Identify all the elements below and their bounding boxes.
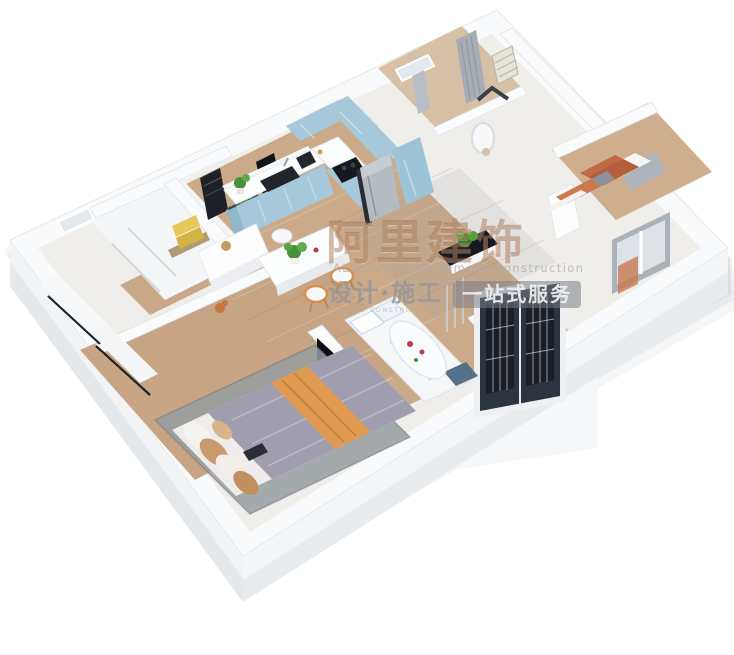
dining-chair-white: [272, 229, 292, 243]
entry-door: [474, 276, 566, 418]
mirror-arch: [472, 123, 494, 153]
floorplan-render: 阿里建饰 ALIECUS Development Construction 设计…: [0, 0, 734, 655]
wooden-jar: [221, 241, 231, 251]
amber-bottle: [318, 150, 323, 155]
sink-bowl: [482, 148, 490, 156]
isometric-apartment-scene: [0, 0, 734, 655]
